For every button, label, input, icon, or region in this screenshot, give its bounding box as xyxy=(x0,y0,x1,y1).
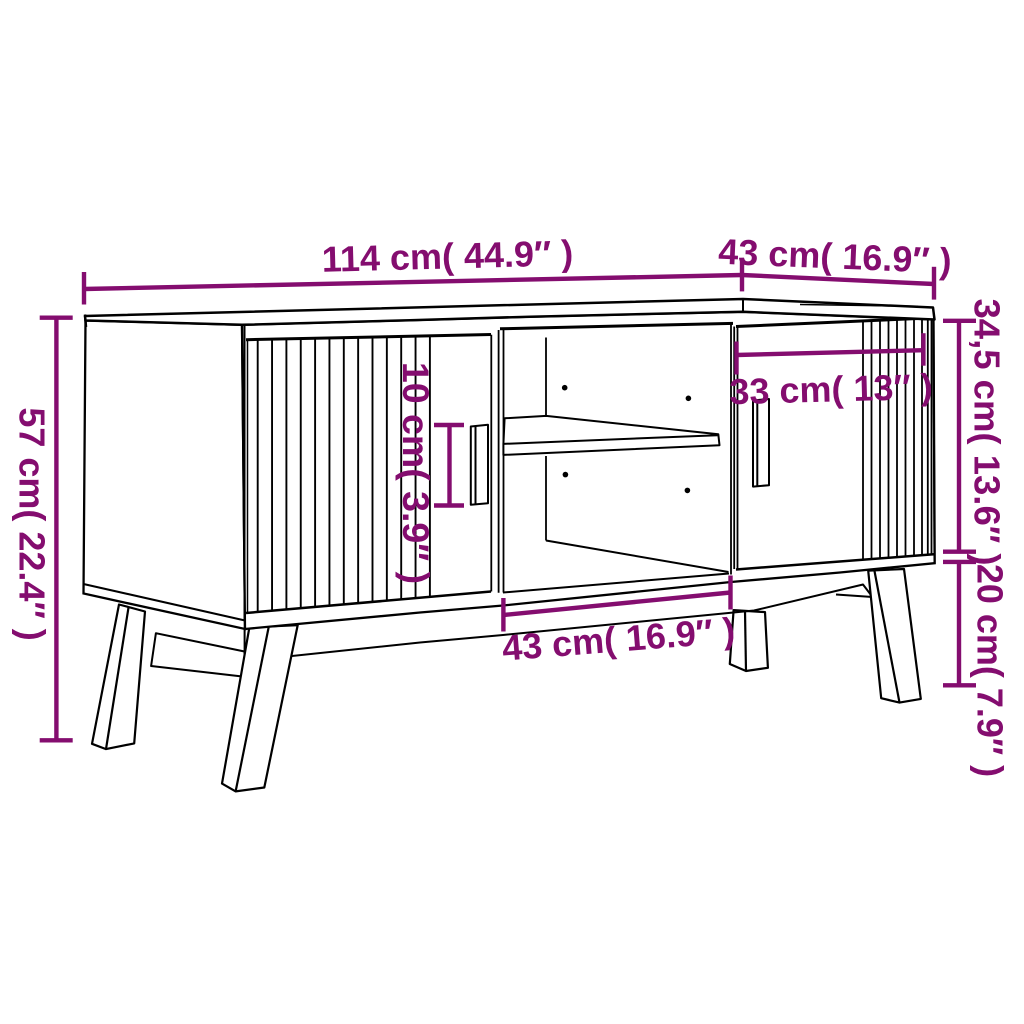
svg-text:34,5 cm( 13.6″ ): 34,5 cm( 13.6″ ) xyxy=(967,298,1008,565)
svg-text:57 cm( 22.4″ ): 57 cm( 22.4″ ) xyxy=(12,407,53,640)
svg-text:10 cm( 3.9″ ): 10 cm( 3.9″ ) xyxy=(395,362,437,584)
svg-text:33 cm( 13″ ): 33 cm( 13″ ) xyxy=(729,366,933,412)
svg-text:114 cm( 44.9″ ): 114 cm( 44.9″ ) xyxy=(321,232,573,280)
svg-text:20 cm( 7.9″ ): 20 cm( 7.9″ ) xyxy=(970,564,1011,777)
